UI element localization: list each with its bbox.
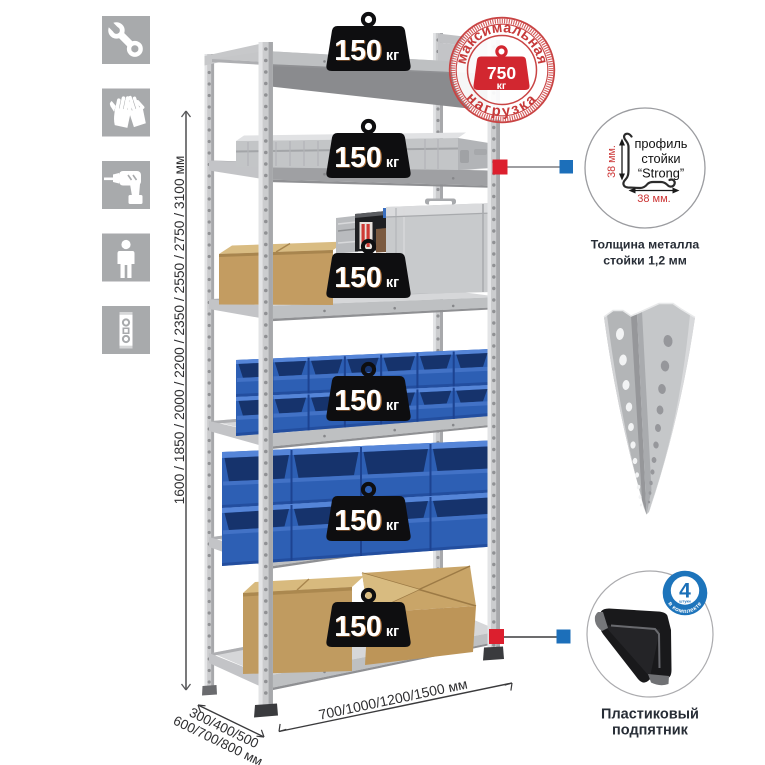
svg-text:кг: кг: [386, 398, 399, 414]
svg-text:подпятник: подпятник: [612, 723, 689, 739]
svg-text:Пластиковый: Пластиковый: [601, 707, 699, 723]
svg-text:кг: кг: [386, 275, 399, 291]
svg-text:стойки 1,2 мм: стойки 1,2 мм: [603, 254, 687, 268]
svg-text:150: 150: [334, 505, 382, 537]
svg-text:150: 150: [334, 142, 382, 174]
svg-text:кг: кг: [386, 48, 399, 64]
svg-text:штуки: штуки: [679, 600, 691, 604]
svg-text:150: 150: [334, 35, 382, 67]
svg-text:“Strong”: “Strong”: [638, 166, 684, 181]
svg-text:150: 150: [334, 385, 382, 417]
svg-text:профиль: профиль: [635, 136, 688, 151]
svg-text:кг: кг: [386, 518, 399, 534]
svg-text:150: 150: [334, 611, 382, 643]
svg-text:кг: кг: [386, 155, 399, 171]
svg-text:150: 150: [334, 262, 382, 294]
svg-text:кг: кг: [386, 624, 399, 640]
svg-text:1600 / 1850 / 2000 / 2200 / 23: 1600 / 1850 / 2000 / 2200 / 2350 / 2550 …: [172, 156, 187, 505]
svg-text:кг: кг: [497, 80, 507, 92]
svg-text:стойки: стойки: [641, 151, 680, 166]
svg-text:38 мм.: 38 мм.: [606, 145, 618, 178]
svg-text:Толщина металла: Толщина металла: [591, 238, 700, 252]
svg-text:38 мм.: 38 мм.: [637, 193, 670, 205]
